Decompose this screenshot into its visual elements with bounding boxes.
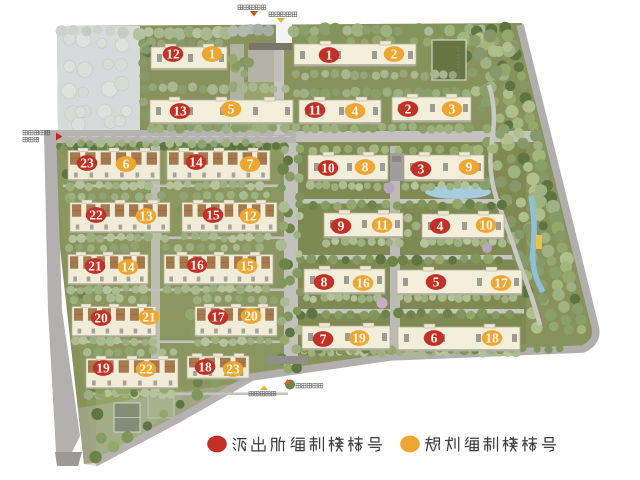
- svg-text:6: 6: [123, 157, 130, 172]
- svg-text:16: 16: [190, 258, 204, 273]
- svg-text:4: 4: [352, 104, 359, 119]
- svg-text:8: 8: [321, 275, 328, 290]
- svg-text:20: 20: [244, 309, 258, 324]
- svg-text:18: 18: [198, 360, 212, 375]
- svg-text:16: 16: [356, 276, 370, 291]
- svg-text:22: 22: [139, 362, 153, 377]
- svg-text:2: 2: [391, 47, 398, 62]
- svg-text:12: 12: [243, 209, 257, 224]
- svg-text:6: 6: [431, 331, 438, 346]
- svg-text:1: 1: [326, 48, 333, 63]
- svg-text:5: 5: [228, 102, 235, 117]
- svg-text:17: 17: [494, 276, 508, 291]
- svg-text:7: 7: [320, 332, 327, 347]
- svg-text:11: 11: [376, 218, 389, 233]
- svg-text:15: 15: [206, 208, 220, 223]
- svg-text:9: 9: [338, 219, 345, 234]
- svg-text:21: 21: [88, 259, 102, 274]
- svg-text:14: 14: [121, 260, 135, 275]
- svg-text:7: 7: [247, 157, 254, 172]
- svg-text:12: 12: [166, 47, 180, 62]
- svg-text:14: 14: [189, 155, 203, 170]
- svg-text:2: 2: [405, 102, 412, 117]
- svg-text:21: 21: [142, 310, 156, 325]
- svg-text:1: 1: [209, 47, 216, 62]
- svg-text:19: 19: [352, 331, 366, 346]
- svg-text:22: 22: [89, 208, 103, 223]
- svg-text:8: 8: [362, 160, 369, 175]
- svg-text:19: 19: [96, 361, 110, 376]
- svg-text:3: 3: [418, 162, 425, 177]
- svg-text:5: 5: [433, 275, 440, 290]
- svg-text:18: 18: [485, 331, 499, 346]
- svg-text:15: 15: [240, 259, 254, 274]
- svg-text:20: 20: [94, 311, 108, 326]
- svg-text:13: 13: [139, 209, 153, 224]
- svg-text:10: 10: [479, 218, 493, 233]
- svg-text:17: 17: [211, 310, 225, 325]
- svg-text:3: 3: [449, 102, 456, 117]
- svg-text:23: 23: [80, 156, 94, 171]
- svg-text:10: 10: [321, 161, 335, 176]
- svg-text:9: 9: [466, 160, 473, 175]
- svg-text:23: 23: [226, 362, 240, 377]
- svg-text:11: 11: [309, 103, 322, 118]
- svg-text:13: 13: [173, 104, 187, 119]
- svg-text:4: 4: [437, 219, 444, 234]
